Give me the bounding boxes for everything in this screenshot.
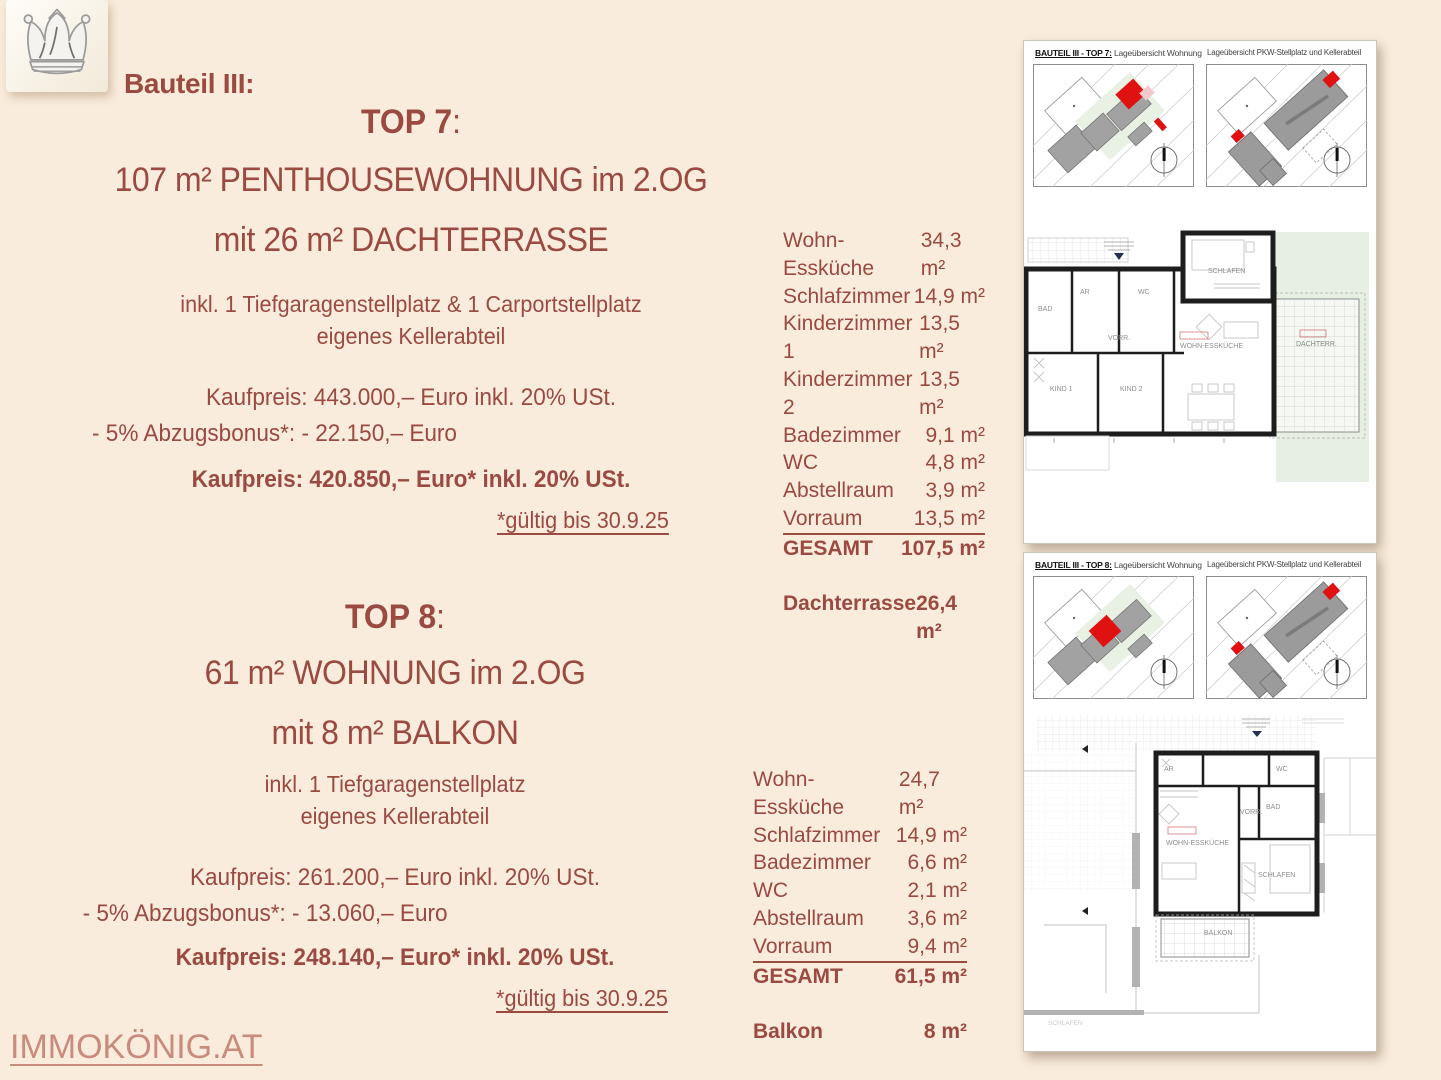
sitemap-top7-wohnung bbox=[1033, 64, 1194, 187]
top8-includes-1: inkl. 1 Tiefgaragenstellplatz bbox=[66, 768, 724, 800]
top7-title: TOP 7: bbox=[82, 100, 740, 144]
sitemap-top8-pkw bbox=[1206, 576, 1367, 699]
panel-title-top8: BAUTEIL III - TOP 8: Lageübersicht Wohnu… bbox=[1035, 560, 1202, 570]
room-row: Abstellraum3,6 m² bbox=[753, 905, 967, 933]
room-row: Badezimmer9,1 m² bbox=[783, 422, 985, 450]
plan-room-label-schlafen: SCHLAFEN bbox=[1208, 268, 1245, 275]
top8-includes-2: eigenes Kellerabteil bbox=[66, 800, 724, 832]
plan-room-label-wohn: WOHN-ESSKÜCHE bbox=[1180, 342, 1243, 350]
room-row: WC2,1 m² bbox=[753, 877, 967, 905]
terrace-row: Dachterrasse26,4 m² bbox=[783, 590, 985, 646]
top7-room-table: Wohn-Essküche34,3 m² Schlafzimmer14,9 m²… bbox=[783, 227, 985, 646]
top8-discount: - 5% Abzugsbonus*: - 13.060,– Euro bbox=[45, 896, 703, 932]
top7-headline-2: mit 26 m² DACHTERRASSE bbox=[82, 218, 740, 262]
room-row: Wohn-Essküche24,7 m² bbox=[753, 766, 967, 822]
room-row: Kinderzimmer 113,5 m² bbox=[783, 310, 985, 366]
top7-details: TOP 7: 107 m² PENTHOUSEWOHNUNG im 2.OG m… bbox=[61, 100, 761, 538]
plan-room-label-kind2: KIND 2 bbox=[1120, 386, 1143, 393]
top8-price-gross: Kaufpreis: 261.200,– Euro inkl. 20% USt. bbox=[66, 860, 724, 896]
room-row: Wohn-Essküche34,3 m² bbox=[783, 227, 985, 283]
plan-room-label-wc: WC bbox=[1138, 289, 1150, 296]
brand-logo bbox=[6, 0, 108, 92]
brand-link[interactable]: IMMOKÖNIG.AT bbox=[10, 1028, 262, 1067]
plan-room-label-bad: BAD bbox=[1266, 804, 1280, 811]
panel-title-top8-right: Lageübersicht PKW-Stellplatz und Kellera… bbox=[1207, 560, 1373, 569]
panel-title-top7-right: Lageübersicht PKW-Stellplatz und Kellera… bbox=[1207, 48, 1373, 57]
total-row: GESAMT107,5 m² bbox=[783, 535, 985, 563]
plan-room-label-dachterrasse: DACHTERR. bbox=[1296, 341, 1337, 348]
panel-title-top7: BAUTEIL III - TOP 7: Lageübersicht Wohnu… bbox=[1035, 48, 1202, 58]
plan-room-label-neighbor: SCHLAFEN bbox=[1048, 1020, 1083, 1027]
total-row: GESAMT61,5 m² bbox=[753, 963, 967, 991]
plan-room-label-wohn: WOHN-ESSKÜCHE bbox=[1166, 839, 1229, 847]
floorplan-top7: SCHLAFEN BAD AR WC VORR. KIND 1 KIND 2 W… bbox=[1024, 226, 1376, 540]
room-row: Badezimmer6,6 m² bbox=[753, 849, 967, 877]
top8-price-final: Kaufpreis: 248.140,– Euro* inkl. 20% USt… bbox=[66, 938, 724, 978]
balcony-row: Balkon8 m² bbox=[753, 1018, 967, 1046]
plan-room-label-ar: AR bbox=[1080, 289, 1090, 296]
top8-headline-2: mit 8 m² BALKON bbox=[66, 711, 724, 755]
sitemap-top8-wohnung bbox=[1033, 576, 1194, 699]
plan-room-label-bad: BAD bbox=[1038, 306, 1052, 313]
top7-price-final: Kaufpreis: 420.850,– Euro* inkl. 20% USt… bbox=[82, 460, 740, 500]
top8-details: TOP 8: 61 m² WOHNUNG im 2.OG mit 8 m² BA… bbox=[45, 595, 745, 1016]
room-row: Vorraum13,5 m² bbox=[783, 505, 985, 535]
room-row: Schlafzimmer14,9 m² bbox=[753, 822, 967, 850]
top7-includes-1: inkl. 1 Tiefgaragenstellplatz & 1 Carpor… bbox=[82, 288, 740, 320]
plan-room-label-vorraum: VORR. bbox=[1108, 335, 1130, 342]
top8-title: TOP 8: bbox=[66, 595, 724, 639]
top7-validity-note: *gültig bis 30.9.25 bbox=[103, 502, 761, 538]
plan-room-label-balkon: BALKON bbox=[1204, 930, 1232, 937]
flyer-page: Bauteil III: TOP 7: 107 m² PENTHOUSEWOHN… bbox=[0, 0, 1441, 1080]
room-row: Vorraum9,4 m² bbox=[753, 933, 967, 963]
room-row: Schlafzimmer14,9 m² bbox=[783, 283, 985, 311]
top8-headline-1: 61 m² WOHNUNG im 2.OG bbox=[66, 651, 724, 695]
sitemap-top7-pkw bbox=[1206, 64, 1367, 187]
floorplan-top8: AR WC BAD VORR. WOHN-ESSKÜCHE SCHLAFEN B… bbox=[1024, 713, 1376, 1051]
top7-headline-1: 107 m² PENTHOUSEWOHNUNG im 2.OG bbox=[82, 158, 740, 202]
plan-room-label-schlafen: SCHLAFEN bbox=[1258, 872, 1295, 879]
plan-room-label-kind1: KIND 1 bbox=[1050, 386, 1073, 393]
room-row: WC4,8 m² bbox=[783, 449, 985, 477]
plan-room-label-wc: WC bbox=[1276, 766, 1288, 773]
top8-validity-note: *gültig bis 30.9.25 bbox=[87, 980, 745, 1016]
plan-room-label-vorraum: VORR. bbox=[1240, 809, 1262, 816]
top8-room-table: Wohn-Essküche24,7 m² Schlafzimmer14,9 m²… bbox=[753, 766, 967, 1046]
crown-icon bbox=[13, 6, 101, 86]
top7-discount: - 5% Abzugsbonus*: - 22.150,– Euro bbox=[61, 416, 719, 452]
room-row: Abstellraum3,9 m² bbox=[783, 477, 985, 505]
section-title: Bauteil III: bbox=[124, 68, 254, 100]
top8-plan-panel: BAUTEIL III - TOP 8: Lageübersicht Wohnu… bbox=[1023, 552, 1377, 1052]
plan-room-label-ar: AR bbox=[1164, 766, 1174, 773]
top7-price-gross: Kaufpreis: 443.000,– Euro inkl. 20% USt. bbox=[82, 380, 740, 416]
top7-plan-panel: BAUTEIL III - TOP 7: Lageübersicht Wohnu… bbox=[1023, 40, 1377, 544]
room-row: Kinderzimmer 213,5 m² bbox=[783, 366, 985, 422]
top7-includes-2: eigenes Kellerabteil bbox=[82, 320, 740, 352]
